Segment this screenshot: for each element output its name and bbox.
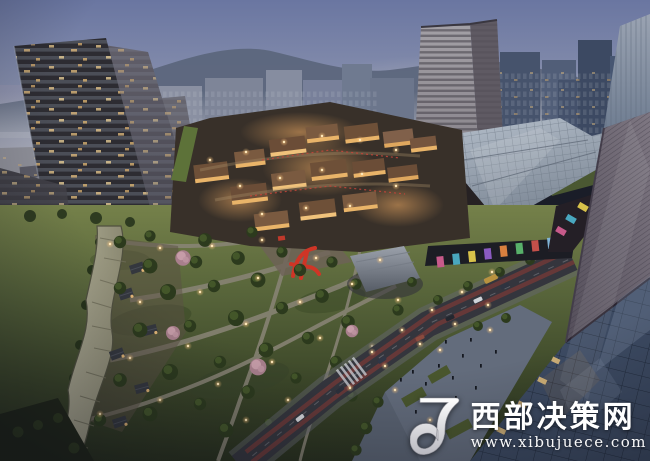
watermark-site-url: www.xibujuece.com [471, 435, 647, 450]
cityscape-rendering [0, 0, 650, 461]
vignette-overlay [0, 0, 650, 461]
watermark: 西部决策网 www.xibujuece.com [410, 396, 647, 456]
rendering-image: 西部决策网 www.xibujuece.com [0, 0, 650, 461]
xibujuece-logo-icon [410, 396, 462, 456]
watermark-site-name: 西部决策网 [471, 403, 636, 433]
